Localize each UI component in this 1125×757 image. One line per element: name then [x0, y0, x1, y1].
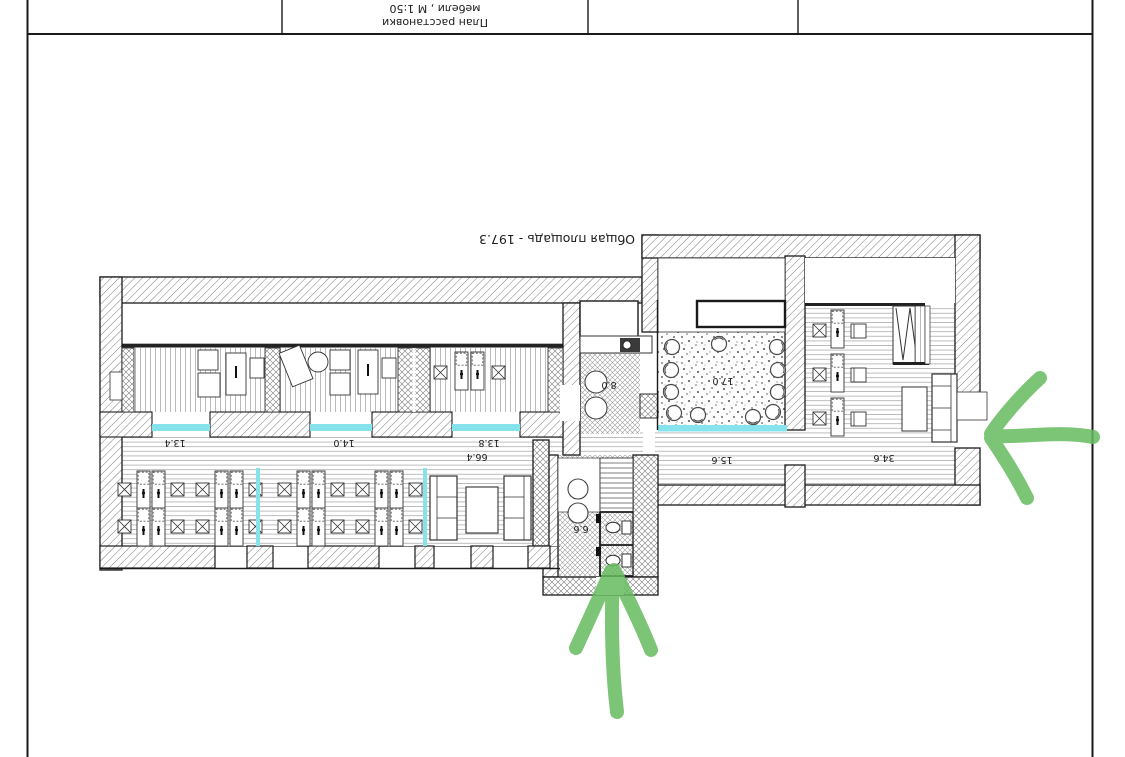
label-wc: 6.6	[573, 523, 588, 534]
green-arrow-left-icon	[990, 378, 1093, 498]
label-cabinet-1: 13.4	[164, 437, 185, 448]
coffee-table	[902, 387, 927, 431]
window-recess	[110, 372, 122, 400]
threshold-cyan	[310, 424, 372, 431]
kitchen-counter	[580, 336, 652, 353]
label-director-office: 34.6	[873, 452, 894, 463]
south-facade	[100, 546, 560, 569]
floor-plan-canvas: План расстановки мебели , М 1:50 Общая п…	[0, 0, 1125, 757]
glass-divider	[256, 468, 260, 546]
drawing-sheet: План расстановки мебели , М 1:50 Общая п…	[0, 0, 1125, 757]
balcony-strip	[122, 303, 563, 344]
entrance-vestibule	[957, 392, 987, 420]
threshold-cyan	[658, 425, 787, 432]
meeting-bench	[697, 301, 785, 327]
pantry-room	[580, 301, 638, 337]
glass-divider	[423, 468, 427, 546]
label-open-space: 66.4	[466, 451, 487, 462]
floor-kitchen	[578, 352, 640, 434]
washbasin-icon	[568, 479, 588, 499]
label-kitchen: 8.0	[601, 379, 616, 390]
threshold-cyan	[152, 424, 210, 431]
wardrobe	[893, 306, 930, 365]
plan-title-line2: мебели , М 1:50	[390, 2, 481, 15]
label-cabinet-3: 13.8	[478, 437, 499, 448]
label-cabinet-2: 14.0	[333, 437, 354, 448]
kitchen-door-opening	[560, 385, 580, 421]
sofa	[932, 374, 957, 442]
round-table	[585, 397, 607, 419]
total-area-note: Общая площадь - 197.3	[479, 232, 635, 247]
stairs	[600, 458, 633, 512]
washbasin-icon	[568, 503, 588, 523]
threshold-cyan	[452, 424, 520, 431]
label-hall: 15.6	[711, 454, 732, 465]
title-block-text: План расстановки мебели , М 1:50	[382, 2, 488, 29]
label-meeting-room: 17.0	[712, 375, 733, 386]
plan-title-line1: План расстановки	[382, 16, 488, 29]
